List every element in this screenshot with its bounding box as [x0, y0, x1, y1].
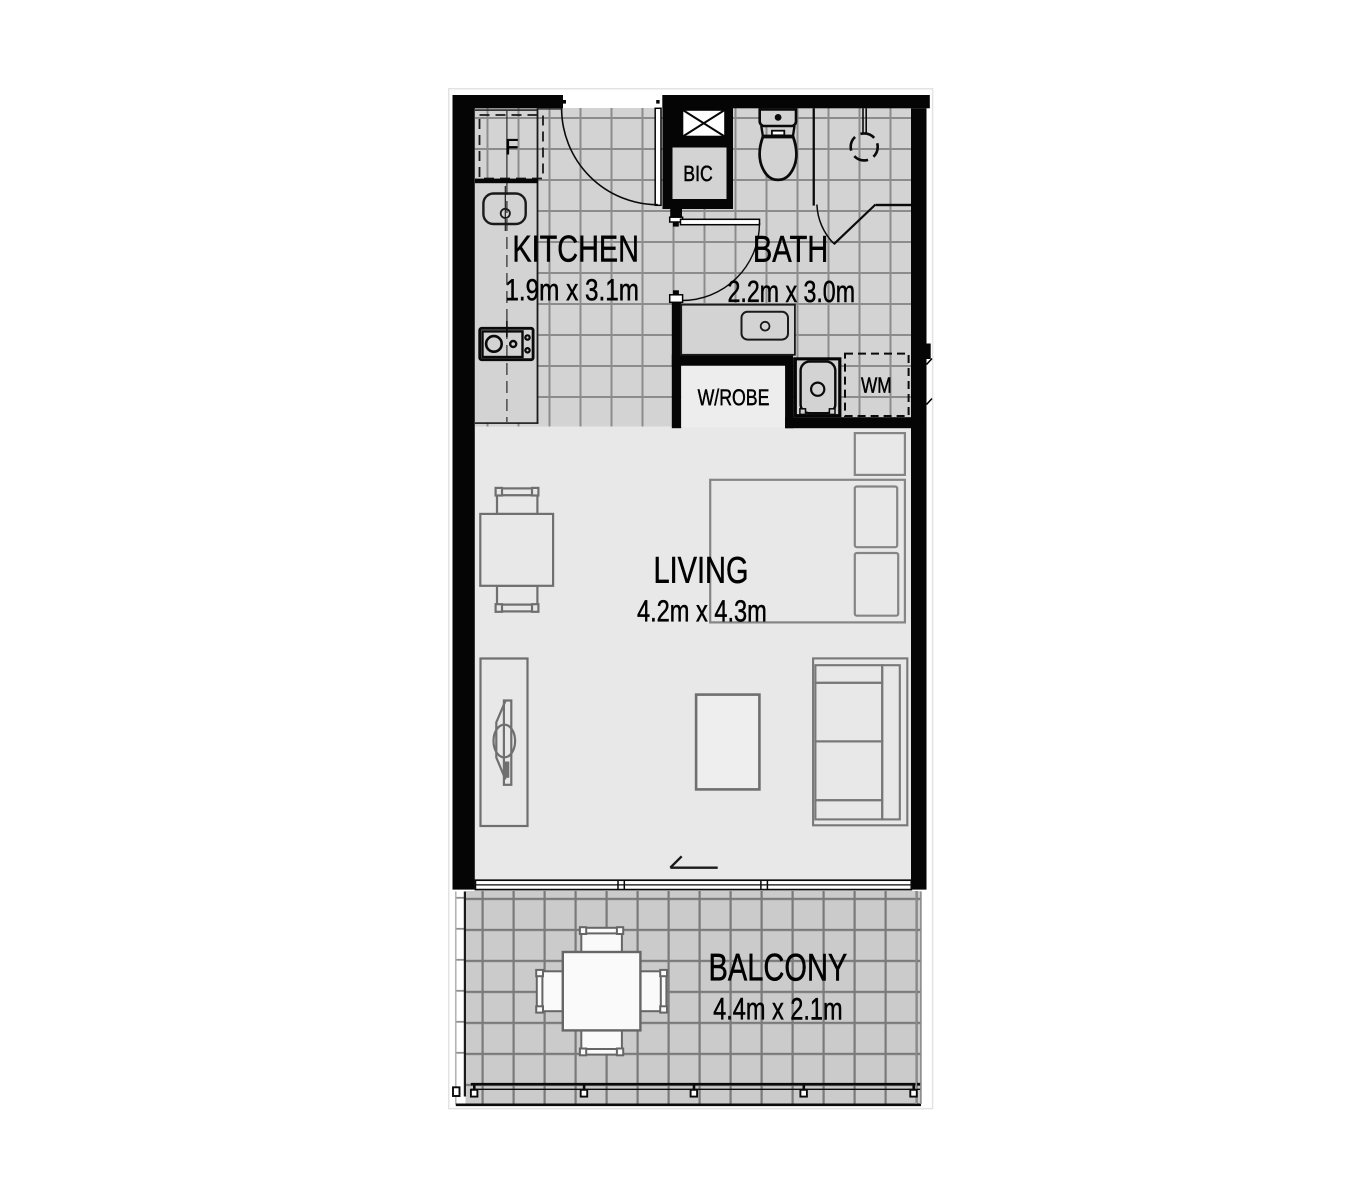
- svg-text:4.4m x 2.1m: 4.4m x 2.1m: [713, 991, 842, 1026]
- svg-text:LIVING: LIVING: [654, 549, 749, 591]
- svg-text:F: F: [505, 134, 518, 159]
- svg-text:BALCONY: BALCONY: [708, 946, 847, 989]
- svg-text:W/ROBE: W/ROBE: [698, 384, 770, 410]
- svg-text:1.9m x 3.1m: 1.9m x 3.1m: [505, 273, 639, 307]
- svg-text:BATH: BATH: [753, 228, 829, 270]
- svg-text:4.2m x 4.3m: 4.2m x 4.3m: [637, 594, 767, 628]
- svg-text:KITCHEN: KITCHEN: [512, 228, 639, 270]
- svg-text:BIC: BIC: [683, 161, 713, 186]
- svg-text:2.2m x 3.0m: 2.2m x 3.0m: [728, 275, 856, 309]
- svg-text:WM: WM: [861, 373, 892, 398]
